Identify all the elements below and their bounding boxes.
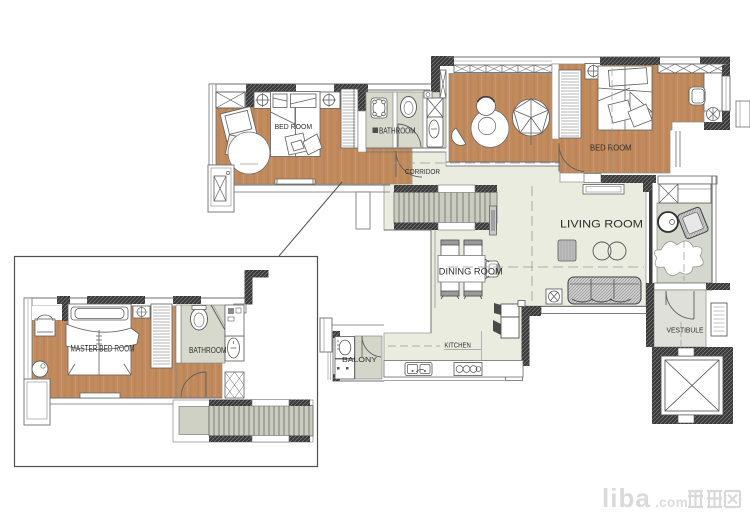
svg-text:LIVING ROOM: LIVING ROOM xyxy=(560,219,643,231)
svg-text:liba: liba xyxy=(602,483,651,513)
svg-text:CORRIDOR: CORRIDOR xyxy=(405,167,440,176)
svg-text:DINING ROOM: DINING ROOM xyxy=(439,267,503,278)
svg-text:KITCHEN: KITCHEN xyxy=(444,343,471,350)
svg-text:BALONY: BALONY xyxy=(342,357,377,364)
svg-text:.com: .com xyxy=(655,495,688,510)
svg-text:BED ROOM: BED ROOM xyxy=(590,144,632,153)
svg-text:BATHROOM: BATHROOM xyxy=(189,345,227,355)
svg-text:BED ROOM: BED ROOM xyxy=(275,122,313,131)
svg-text:MASTER BED ROOM: MASTER BED ROOM xyxy=(71,344,135,354)
svg-text:BATHROOM: BATHROOM xyxy=(379,127,416,136)
svg-text:VESTIBULE: VESTIBULE xyxy=(667,328,704,335)
